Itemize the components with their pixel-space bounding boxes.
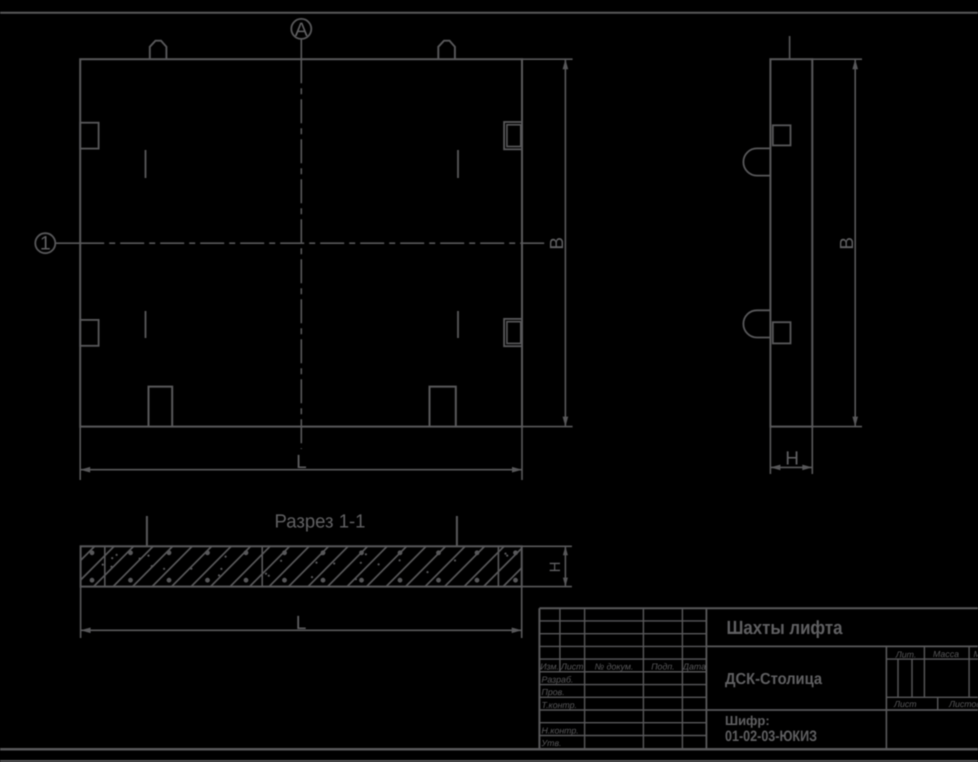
- svg-text:Лист: Лист: [893, 699, 917, 709]
- svg-text:Пров.: Пров.: [542, 687, 565, 697]
- svg-text:Утв.: Утв.: [541, 738, 562, 748]
- svg-text:Лит.: Лит.: [895, 650, 917, 660]
- svg-text:Разрез 1-1: Разрез 1-1: [275, 511, 366, 532]
- svg-text:А: А: [295, 19, 308, 41]
- svg-text:Изм.: Изм.: [540, 662, 559, 672]
- svg-text:Лист: Лист: [560, 662, 584, 672]
- svg-text:L: L: [296, 613, 307, 634]
- svg-text:L: L: [296, 452, 307, 473]
- svg-text:№ докум.: № докум.: [595, 662, 634, 672]
- svg-text:Дата: Дата: [682, 662, 706, 672]
- svg-text:В: В: [837, 237, 858, 250]
- svg-text:Н: Н: [785, 448, 799, 469]
- svg-text:Н.контр.: Н.контр.: [542, 725, 579, 735]
- svg-text:Масса: Масса: [933, 649, 959, 659]
- svg-text:Шифр:: Шифр:: [725, 713, 770, 728]
- svg-text:Подп.: Подп.: [651, 662, 674, 672]
- svg-text:Масштаб: Масштаб: [974, 649, 978, 659]
- svg-text:Разраб.: Разраб.: [542, 674, 574, 684]
- svg-text:1: 1: [40, 233, 51, 255]
- svg-text:ДСК-Столица: ДСК-Столица: [725, 671, 822, 688]
- svg-text:Шахты лифта: Шахты лифта: [727, 618, 843, 639]
- svg-text:В: В: [547, 237, 568, 250]
- svg-text:Т.контр.: Т.контр.: [542, 700, 578, 710]
- svg-text:Н: Н: [547, 562, 564, 573]
- svg-text:Листов: Листов: [948, 699, 978, 709]
- svg-text:01-02-03-ЮКИЗ: 01-02-03-ЮКИЗ: [725, 728, 817, 745]
